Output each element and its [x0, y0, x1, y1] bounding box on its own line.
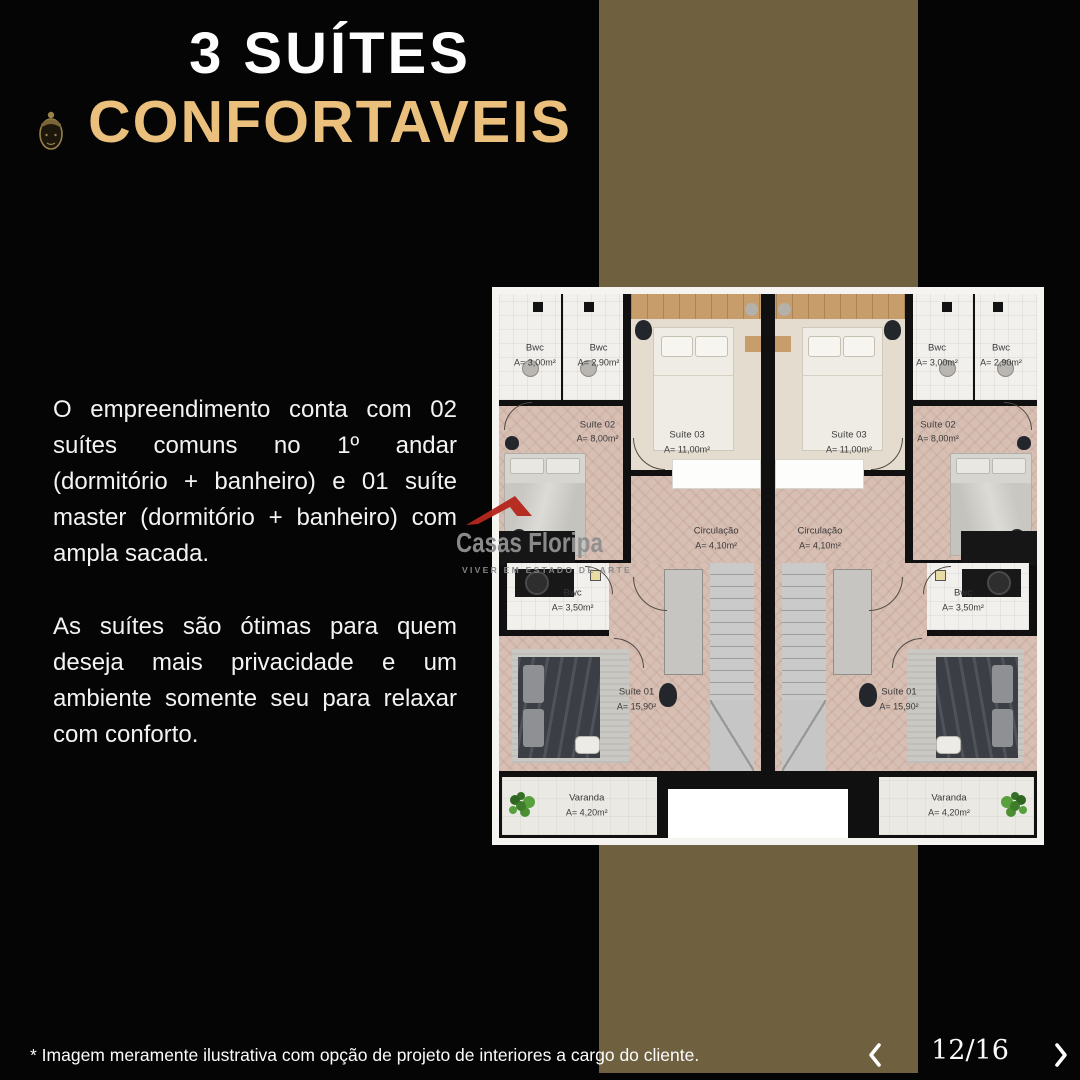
room-label: Bwc A= 3,50m²: [943, 587, 985, 616]
pouf: [505, 436, 519, 450]
description-paragraph-1: O empreendimento conta com 02 suítes com…: [53, 392, 457, 572]
logo-roof-icon: [466, 494, 532, 526]
wood-floor: [775, 336, 791, 352]
closet: [775, 459, 864, 488]
closet: [672, 459, 761, 488]
wardrobe: [833, 569, 872, 675]
room-label: Varanda A= 4,20m²: [928, 792, 970, 821]
room-label: Suíte 02 A= 8,00m²: [918, 418, 960, 447]
closet: [961, 531, 1037, 565]
buddha-icon: [36, 110, 66, 156]
title-block: 3 SUÍTES CONFORTAVEIS: [70, 22, 590, 155]
entry-area: [668, 785, 848, 838]
disclaimer-text: * Imagem meramente ilustrativa com opção…: [30, 1045, 699, 1066]
bottom-edge: [0, 1073, 1080, 1080]
prev-page-button[interactable]: [866, 1042, 884, 1068]
room-label: Suíte 01 A= 15,90²: [880, 685, 919, 714]
decor: [778, 303, 791, 316]
pouf: [859, 683, 877, 707]
room-label: Bwc A= 3,00m²: [514, 342, 556, 371]
page-title: 3 SUÍTES: [70, 22, 590, 86]
slide: 3 SUÍTES CONFORTAVEIS O empreendimento c…: [0, 0, 1080, 1080]
description-paragraph-2: As suítes são ótimas para quem deseja ma…: [53, 609, 457, 753]
room-label: Suíte 03 A= 11,00m²: [826, 429, 872, 458]
brand-watermark: Casas Floripa VIVER EM ESTADO DE ARTE: [456, 494, 636, 575]
pouf: [1017, 436, 1031, 450]
brand-name: Casas Floripa: [456, 527, 600, 559]
armchair: [936, 736, 961, 754]
room-label: Circulação A= 4,10m²: [797, 524, 842, 553]
pouf: [659, 683, 677, 707]
room-label: Bwc A= 3,50m²: [552, 587, 594, 616]
room-label: Bwc A= 2,90m²: [980, 342, 1022, 371]
plant: [1010, 801, 1020, 811]
chair: [884, 320, 901, 340]
description-text: O empreendimento conta com 02 suítes com…: [53, 392, 457, 753]
floorplan-unit-right: Bwc A= 2,90m² Bwc A= 3,00m² Suíte 02 A= …: [775, 294, 1037, 838]
sink: [987, 571, 1011, 595]
wood-floor: [631, 294, 761, 319]
page-title-accent: CONFORTAVEIS: [70, 90, 590, 155]
room-label: Suíte 03 A= 11,00m²: [664, 429, 710, 458]
room-label: Circulação A= 4,10m²: [694, 524, 739, 553]
room-label: Varanda A= 4,20m²: [566, 792, 608, 821]
room-label: Suíte 02 A= 8,00m²: [577, 418, 619, 447]
wood-floor: [745, 336, 761, 352]
wardrobe: [664, 569, 703, 675]
room-label: Bwc A= 3,00m²: [917, 342, 959, 371]
wood-floor: [775, 294, 905, 319]
chevron-right-icon: [1052, 1042, 1070, 1068]
room-label: Bwc A= 2,90m²: [578, 342, 620, 371]
room-label: Suíte 01 A= 15,90²: [617, 685, 656, 714]
chair: [635, 320, 652, 340]
chevron-left-icon: [866, 1042, 884, 1068]
page-indicator: 12/16: [922, 1035, 1018, 1066]
stairs: [710, 563, 755, 771]
stairs: [782, 563, 827, 771]
armchair: [575, 736, 600, 754]
plant: [516, 801, 526, 811]
next-page-button[interactable]: [1052, 1042, 1070, 1068]
brand-tagline: VIVER EM ESTADO DE ARTE: [456, 565, 636, 575]
